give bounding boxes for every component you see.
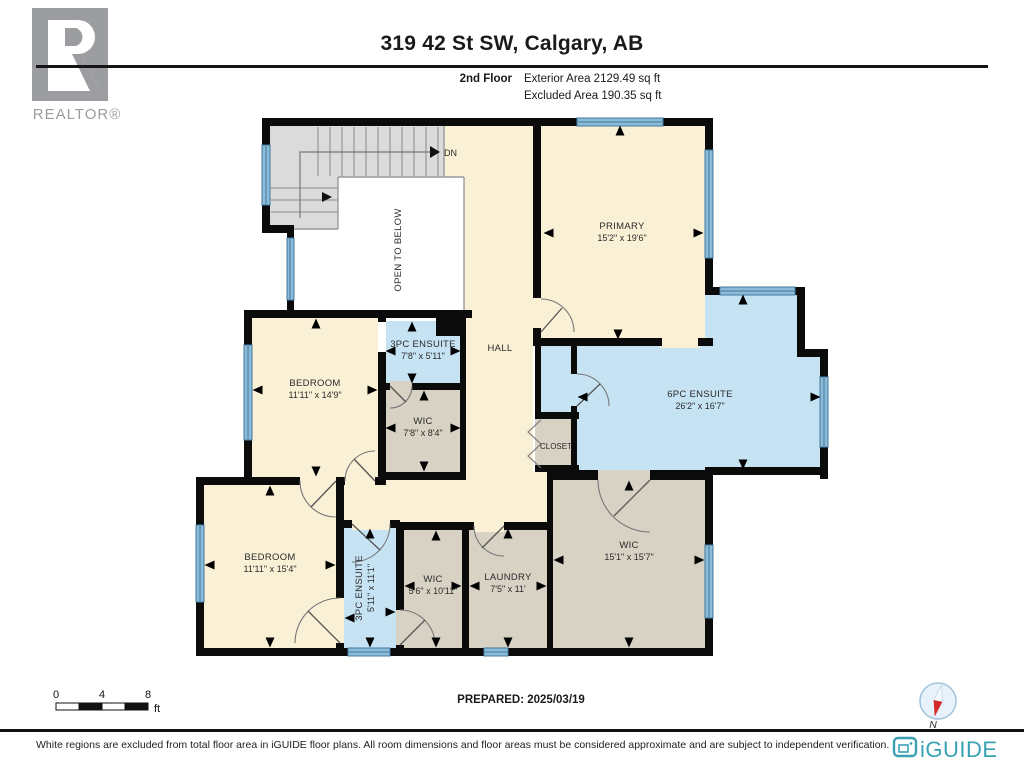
- scale-bar: 0 4 8 ft: [48, 684, 188, 720]
- ensuite6-label: 6PC ENSUITE: [667, 389, 733, 400]
- footer-disclaimer: White regions are excluded from total fl…: [36, 739, 889, 751]
- ensuite3-top-label: 3PC ENSUITE: [390, 339, 456, 350]
- bedroom-btm-label: BEDROOM: [244, 552, 295, 563]
- laundry-dims: 7'5" x 11': [490, 584, 526, 594]
- scale-tick-8: 8: [145, 689, 151, 701]
- floor-plan-page: REALTOR® 319 42 St SW, Calgary, AB 2nd F…: [0, 0, 1024, 767]
- scale-tick-0: 0: [53, 689, 59, 701]
- bedroom-mid-dims: 11'11" x 14'9": [288, 390, 341, 400]
- compass: N: [910, 676, 968, 732]
- footer-divider: [0, 729, 1024, 732]
- bedroom-mid-label: BEDROOM: [289, 378, 340, 389]
- hall-label: HALL: [488, 343, 513, 354]
- wic-big-area: [553, 480, 705, 648]
- prepared-date: PREPARED: 2025/03/19: [380, 694, 662, 706]
- wic-small-label: WIC: [423, 574, 442, 585]
- stairs-dn-label: DN: [444, 148, 457, 158]
- ensuite3-btm-dims: 5'11" x 11'1": [366, 564, 376, 612]
- iguide-logo-icon: [894, 738, 916, 756]
- iguide-logo-text: iGUIDE: [920, 737, 998, 762]
- ensuite3-btm-label: 3PC ENSUITE: [354, 555, 365, 621]
- primary-dims: 15'2" x 19'6": [597, 233, 646, 243]
- ensuite6-dims: 26'2" x 16'7": [675, 401, 724, 411]
- toilet-room-area: [541, 346, 571, 412]
- open-to-below-label: OPEN TO BELOW: [393, 208, 404, 291]
- wic-big-label: WIC: [619, 540, 638, 551]
- scale-tick-4: 4: [99, 689, 105, 701]
- wic-mid-label: WIC: [413, 416, 432, 427]
- wic-mid-dims: 7'8" x 8'4": [403, 428, 442, 438]
- scale-unit: ft: [154, 703, 160, 715]
- bedroom-btm-dims: 11'11" x 15'4": [243, 564, 296, 574]
- ensuite3-top-dims: 7'8" x 5'11": [401, 351, 445, 361]
- floor-plan-drawing: DN OPEN TO BELOW HALL CLOSET PRIMARY 15'…: [0, 0, 1024, 767]
- iguide-logo: iGUIDE: [892, 733, 1002, 763]
- laundry-label: LAUNDRY: [484, 572, 532, 583]
- wic-small-dims: 5'6" x 10'11": [409, 586, 458, 596]
- wic-big-dims: 15'1" x 15'7": [604, 552, 653, 562]
- closet-label: CLOSET: [540, 442, 572, 451]
- primary-label: PRIMARY: [599, 221, 645, 232]
